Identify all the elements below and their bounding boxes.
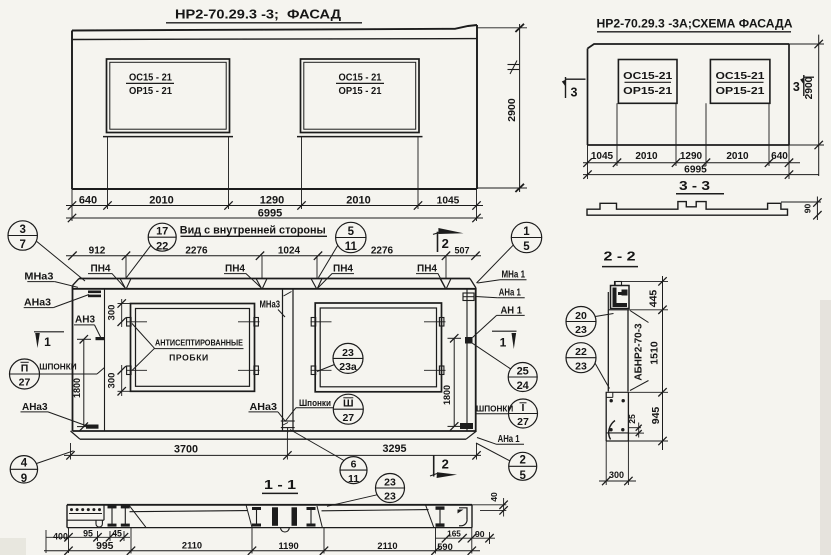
svg-text:АНа3: АНа3 bbox=[22, 402, 48, 413]
svg-text:45: 45 bbox=[112, 529, 122, 539]
svg-text:27: 27 bbox=[19, 377, 31, 389]
svg-text:1: 1 bbox=[500, 335, 507, 349]
svg-text:МНа3: МНа3 bbox=[260, 299, 281, 310]
svg-text:ОР15 - 21: ОР15 - 21 bbox=[339, 86, 382, 97]
svg-text:912: 912 bbox=[89, 246, 106, 257]
svg-text:445: 445 bbox=[648, 290, 660, 308]
svg-text:2: 2 bbox=[442, 457, 449, 472]
svg-text:23а: 23а bbox=[339, 361, 357, 373]
svg-text:АНТИСЕПТИРОВАННЫЕ: АНТИСЕПТИРОВАННЫЕ bbox=[155, 338, 243, 348]
svg-text:1045: 1045 bbox=[437, 196, 460, 207]
svg-text:9: 9 bbox=[21, 473, 27, 485]
svg-text:1800: 1800 bbox=[442, 385, 452, 405]
svg-text:1024: 1024 bbox=[278, 246, 301, 257]
svg-text:5: 5 bbox=[523, 241, 530, 253]
svg-text:27: 27 bbox=[342, 412, 354, 424]
svg-text:1: 1 bbox=[523, 226, 530, 238]
svg-text:АН 1: АН 1 bbox=[501, 305, 523, 316]
svg-text:МНа 1: МНа 1 bbox=[502, 270, 526, 281]
svg-text:ШПОНКИ: ШПОНКИ bbox=[476, 405, 513, 414]
svg-text:17: 17 bbox=[156, 226, 168, 238]
svg-text:3 - 3: 3 - 3 bbox=[679, 179, 710, 193]
svg-text:АНа3: АНа3 bbox=[250, 402, 278, 413]
svg-text:I: I bbox=[522, 402, 525, 414]
svg-text:ПН4: ПН4 bbox=[225, 263, 245, 274]
svg-text:3700: 3700 bbox=[174, 444, 198, 456]
svg-text:3295: 3295 bbox=[382, 443, 406, 455]
svg-text:ОР15 - 21: ОР15 - 21 bbox=[129, 86, 172, 97]
svg-text:22: 22 bbox=[575, 346, 587, 358]
svg-text:ОС15 - 21: ОС15 - 21 bbox=[129, 73, 172, 84]
svg-text:П: П bbox=[21, 362, 29, 374]
svg-text:1510: 1510 bbox=[649, 341, 661, 365]
svg-text:23: 23 bbox=[575, 360, 587, 372]
svg-text:2 - 2: 2 - 2 bbox=[604, 250, 636, 264]
svg-text:ОР15-21: ОР15-21 bbox=[716, 86, 765, 97]
svg-text:90: 90 bbox=[803, 204, 813, 214]
svg-text:2276: 2276 bbox=[371, 246, 394, 257]
svg-text:АНа3: АНа3 bbox=[24, 297, 51, 308]
svg-text:25: 25 bbox=[517, 365, 529, 377]
svg-text:1190: 1190 bbox=[279, 541, 299, 551]
svg-text:300: 300 bbox=[107, 373, 118, 389]
svg-text:ОС15 - 21: ОС15 - 21 bbox=[339, 73, 382, 84]
svg-text:24: 24 bbox=[517, 380, 530, 392]
svg-text:6995: 6995 bbox=[258, 208, 282, 220]
svg-text:20: 20 bbox=[575, 310, 587, 322]
svg-text:АНа 1: АНа 1 bbox=[499, 287, 521, 298]
svg-text:1045: 1045 bbox=[591, 151, 614, 162]
svg-text:11: 11 bbox=[345, 241, 358, 253]
svg-text:300: 300 bbox=[107, 305, 118, 321]
svg-text:2900: 2900 bbox=[804, 76, 815, 99]
svg-text:165: 165 bbox=[447, 529, 461, 538]
svg-text:945: 945 bbox=[650, 407, 662, 425]
svg-text:6995: 6995 bbox=[684, 165, 707, 176]
svg-text:4: 4 bbox=[21, 458, 28, 470]
svg-text:2276: 2276 bbox=[185, 246, 208, 257]
svg-text:23: 23 bbox=[342, 347, 354, 359]
svg-text:МНа3: МНа3 bbox=[24, 272, 53, 283]
svg-text:АН3: АН3 bbox=[75, 314, 95, 325]
svg-text:2010: 2010 bbox=[726, 151, 749, 162]
svg-text:27: 27 bbox=[517, 416, 529, 428]
svg-text:90: 90 bbox=[475, 529, 485, 539]
svg-text:11: 11 bbox=[348, 473, 359, 485]
svg-text:23: 23 bbox=[384, 491, 396, 503]
svg-text:25: 25 bbox=[627, 414, 637, 424]
svg-text:2110: 2110 bbox=[377, 541, 397, 551]
svg-text:Вид с внутренней стороны: Вид с внутренней стороны bbox=[180, 224, 326, 236]
svg-text:3: 3 bbox=[571, 86, 578, 100]
svg-text:2110: 2110 bbox=[182, 540, 202, 550]
svg-text:1290: 1290 bbox=[260, 195, 284, 207]
svg-text:5: 5 bbox=[519, 470, 526, 482]
svg-text:590: 590 bbox=[437, 542, 453, 552]
svg-text:ПН4: ПН4 bbox=[91, 263, 111, 274]
svg-text:2010: 2010 bbox=[635, 151, 658, 162]
svg-text:1 - 1: 1 - 1 bbox=[264, 478, 296, 492]
svg-text:2010: 2010 bbox=[346, 195, 370, 207]
svg-text:300: 300 bbox=[609, 470, 624, 480]
svg-text:НР2-70.29.3 -3; ФАСАД: НР2-70.29.3 -3; ФАСАД bbox=[175, 7, 342, 22]
svg-text:23: 23 bbox=[575, 324, 587, 336]
svg-text:640: 640 bbox=[771, 151, 788, 162]
svg-text:23: 23 bbox=[384, 476, 396, 488]
svg-text:2: 2 bbox=[519, 455, 525, 467]
svg-text:640: 640 bbox=[79, 195, 97, 207]
svg-text:АБНР2-70-3: АБНР2-70-3 bbox=[634, 323, 645, 381]
svg-text:ОС15-21: ОС15-21 bbox=[623, 71, 672, 82]
svg-text:ОС15-21: ОС15-21 bbox=[716, 71, 765, 82]
svg-text:АНа 1: АНа 1 bbox=[498, 434, 520, 445]
svg-text:95: 95 bbox=[83, 529, 93, 539]
svg-text:ОР15-21: ОР15-21 bbox=[623, 86, 672, 97]
svg-text:3: 3 bbox=[19, 224, 25, 236]
svg-text:40: 40 bbox=[489, 492, 499, 502]
svg-text:ПН4: ПН4 bbox=[333, 263, 353, 274]
svg-text:7: 7 bbox=[19, 239, 25, 251]
svg-text:2010: 2010 bbox=[149, 195, 173, 207]
svg-text:2900: 2900 bbox=[506, 98, 518, 122]
svg-text:ПН4: ПН4 bbox=[417, 263, 437, 274]
svg-text:1800: 1800 bbox=[72, 378, 82, 398]
svg-text:ШПОНКИ: ШПОНКИ bbox=[39, 363, 76, 372]
svg-text:22: 22 bbox=[156, 240, 168, 252]
svg-text:507: 507 bbox=[454, 246, 469, 256]
svg-text:3: 3 bbox=[793, 80, 800, 94]
svg-text:1290: 1290 bbox=[680, 151, 703, 162]
svg-text:6: 6 bbox=[351, 459, 357, 471]
svg-text:НР2-70.29.3 -3А;СХЕМА ФАСАДА: НР2-70.29.3 -3А;СХЕМА ФАСАДА bbox=[597, 17, 793, 31]
svg-text:ПРОБКИ: ПРОБКИ bbox=[169, 352, 209, 362]
svg-text:Ш: Ш bbox=[343, 398, 354, 410]
svg-text:1: 1 bbox=[44, 335, 51, 349]
svg-text:Шпонки: Шпонки bbox=[299, 398, 331, 408]
svg-text:2: 2 bbox=[442, 236, 449, 251]
svg-text:5: 5 bbox=[348, 226, 355, 238]
svg-text:400: 400 bbox=[53, 532, 68, 542]
